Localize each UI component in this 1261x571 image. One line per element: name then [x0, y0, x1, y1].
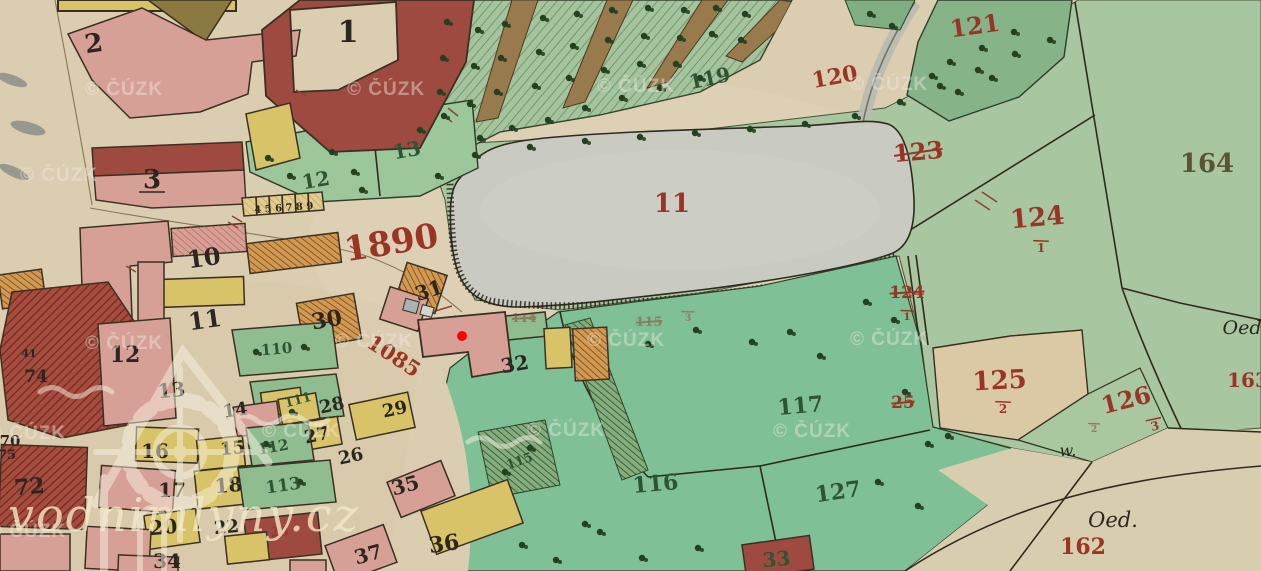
svg-text:41: 41	[21, 347, 36, 360]
parcel-label-10: 10	[185, 241, 222, 274]
parcel-3	[94, 170, 246, 208]
svg-text:w.: w.	[1060, 441, 1077, 460]
svg-text:Oed: Oed	[1223, 317, 1261, 339]
parcel-label-114: 114	[511, 311, 536, 325]
site-watermark: vodnimlyny.cz	[8, 488, 360, 542]
parcel-label-w.: w.	[1060, 441, 1077, 460]
svg-text:36: 36	[427, 529, 461, 559]
parcel-label-1: 1	[338, 15, 359, 50]
parcel-label-Oed: Oed	[1223, 317, 1261, 339]
svg-text:117: 117	[776, 391, 824, 421]
cuzk-watermark: © ČÚZK	[347, 78, 425, 100]
svg-text:Oed.: Oed.	[1088, 508, 1138, 532]
svg-text:1: 1	[1037, 241, 1045, 255]
svg-text:162: 162	[1060, 534, 1106, 560]
parcel-label-123: 123	[892, 135, 944, 168]
svg-text:3: 3	[143, 165, 161, 195]
cuzk-watermark: © ČÚZK	[527, 419, 605, 441]
parcel-label-75: 75	[0, 448, 16, 463]
parcel-label-162: 162	[1060, 534, 1106, 560]
svg-text:3: 3	[685, 313, 692, 324]
parcel-label-36: 36	[427, 529, 461, 559]
svg-text:116: 116	[631, 469, 679, 499]
cuzk-watermark: © ČÚZK	[85, 332, 163, 354]
svg-text:11: 11	[186, 303, 223, 336]
parcel-label-124: 124	[889, 283, 925, 303]
cuzk-watermark: © ČÚZK	[85, 78, 163, 100]
historic-cadastral-map-canvas[interactable]: 1234 5 6 7 8 910111213141516171820222627…	[0, 0, 1261, 571]
parcel-label-33: 33	[761, 546, 791, 571]
parcel-label-164: 164	[1180, 149, 1234, 179]
parcel-label-12: 12	[300, 166, 332, 194]
parcel-label-32: 32	[499, 350, 531, 378]
cuzk-watermark: © ČÚZK	[587, 329, 665, 351]
mill-location-marker[interactable]	[457, 331, 467, 341]
svg-text:125: 125	[972, 365, 1028, 398]
parcel-label-41: 41	[21, 347, 36, 360]
cuzk-watermark: © ČÚZK	[335, 330, 413, 352]
cuzk-watermark: © ČÚZK	[850, 73, 928, 95]
parcel-label-163: 163	[1227, 368, 1261, 392]
svg-text:110: 110	[260, 339, 293, 360]
svg-text:2: 2	[1091, 425, 1097, 435]
parcel-label-Oed.: Oed.	[1088, 508, 1138, 532]
svg-text:10: 10	[185, 241, 222, 274]
parcel-label-110: 110	[260, 339, 293, 360]
svg-text:75: 75	[0, 448, 16, 463]
svg-text:13: 13	[391, 136, 423, 164]
parcel-label-125: 125	[972, 365, 1028, 398]
parcel-label-74: 74	[24, 367, 48, 387]
parcel-label-25: 25	[891, 393, 915, 413]
svg-text:124: 124	[1009, 201, 1066, 236]
svg-text:164: 164	[1180, 149, 1234, 179]
svg-text:2: 2	[999, 402, 1007, 416]
cuzk-watermark: © ČÚZK	[597, 75, 675, 97]
cuzk-watermark: © ČÚZK	[773, 420, 851, 442]
svg-text:74: 74	[24, 367, 48, 387]
svg-text:32: 32	[499, 350, 531, 378]
cuzk-watermark: © ČÚZK	[850, 328, 928, 350]
parcel-label-124: 124	[1009, 201, 1066, 236]
svg-text:1: 1	[904, 312, 911, 323]
cuzk-watermark: © ČÚZK	[20, 164, 98, 186]
parcel-label-115: 115	[635, 315, 662, 330]
parcel-label-34: 34	[153, 549, 181, 571]
svg-text:33: 33	[761, 546, 791, 571]
svg-text:1: 1	[338, 15, 359, 50]
parcel-label-116: 116	[631, 469, 679, 499]
cuzk-watermark: © ČÚZK	[0, 422, 66, 444]
svg-text:11: 11	[654, 189, 690, 219]
svg-text:163: 163	[1227, 368, 1261, 392]
parcel-label-117: 117	[776, 391, 824, 421]
parcel-label-11: 11	[186, 303, 223, 336]
svg-text:34: 34	[153, 549, 181, 571]
parcel-label-11: 11	[654, 189, 690, 219]
parcel-label-13: 13	[391, 136, 423, 164]
svg-text:12: 12	[300, 166, 332, 194]
